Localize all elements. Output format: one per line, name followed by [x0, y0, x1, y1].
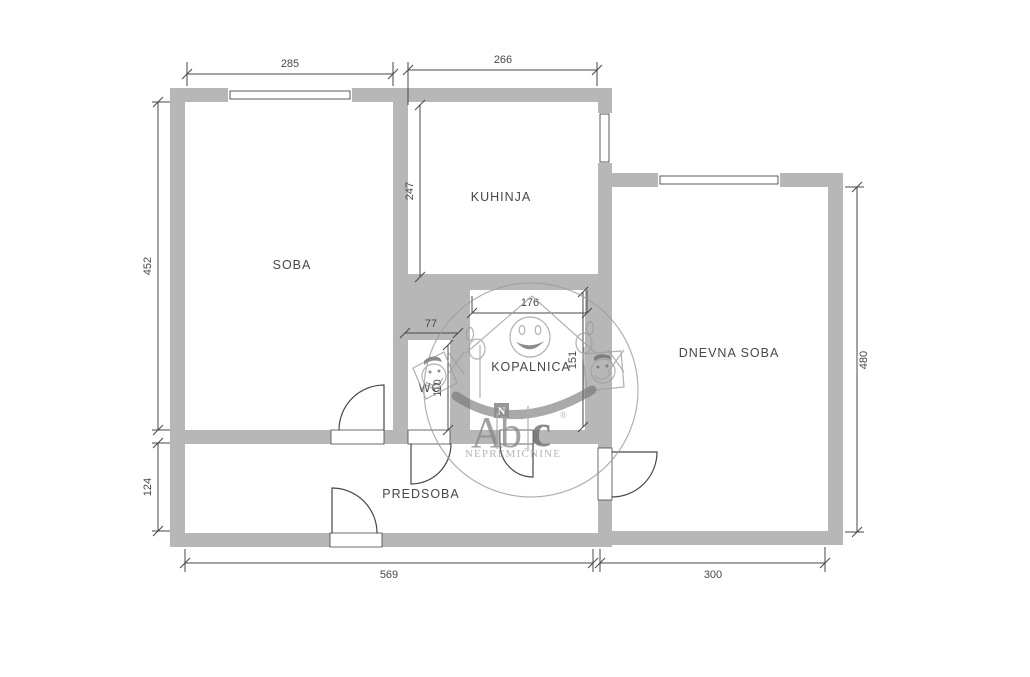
room-label-predsoba: PREDSOBA: [382, 487, 459, 501]
room-label-dnevna-soba: DNEVNA SOBA: [679, 346, 780, 360]
dim-predsoba-height: 124: [142, 478, 154, 496]
kitchen-window: [600, 114, 609, 162]
wall-dnevna-bottom: [612, 531, 843, 545]
dim-bottom-right: 300: [704, 569, 722, 581]
floor-plan-drawing: 285 266 452 124 247 77 176 110 151 480 5…: [0, 0, 1030, 677]
watermark-face-right-eye1: [597, 366, 600, 369]
wall-right: [828, 187, 843, 545]
dnevna-door-sill: [598, 448, 612, 500]
wall-top-mid: [352, 88, 612, 102]
entry-door-sill: [330, 533, 382, 547]
wall-kitchen-bottom: [393, 274, 612, 290]
soba-window: [230, 91, 350, 99]
dim-kuhinja-width: 266: [494, 54, 512, 66]
watermark-face-center-smile: [516, 341, 544, 349]
dim-wc-width: 77: [425, 318, 437, 330]
wall-dnevna-top-right: [780, 173, 843, 187]
watermark-face-center: [510, 317, 550, 357]
room-label-kopalnica: KOPALNICA: [491, 360, 571, 374]
watermark-face-right-eye2: [606, 365, 609, 368]
watermark-face-center-eye-left: [519, 326, 525, 335]
floor-plan-page: 285 266 452 124 247 77 176 110 151 480 5…: [0, 0, 1030, 677]
dim-line-kuhinja-height: [415, 100, 425, 282]
wall-kitchen-right-stub: [598, 102, 612, 113]
wall-corridor-right: [598, 163, 612, 448]
dim-soba-height: 452: [142, 257, 154, 275]
dimension-labels: 285 266 452 124 247 77 176 110 151 480 5…: [142, 54, 870, 581]
watermark-face-left-eye1: [429, 371, 432, 374]
wall-predsoba-bottom-right: [382, 533, 612, 547]
windows: [228, 88, 780, 187]
soba-door-sill: [331, 430, 384, 444]
dnevna-door-leaf-arc: [612, 452, 657, 497]
watermark-face-left-eye2: [438, 370, 441, 373]
wall-dnevna-top-left: [612, 173, 658, 187]
wc-door-sill: [408, 430, 450, 444]
dim-bottom-left: 569: [380, 569, 398, 581]
wall-left: [170, 88, 185, 547]
wall-soba-kitchen-divider: [393, 102, 408, 444]
watermark-face-center-eye-right: [535, 326, 541, 335]
dim-line-soba-height: [152, 97, 170, 435]
room-label-soba: SOBA: [273, 258, 312, 272]
watermark-subtitle: NEPREMIČNINE: [465, 448, 561, 460]
dim-dnevna-height: 480: [858, 351, 870, 369]
dim-soba-width: 285: [281, 58, 299, 70]
dnevna-window: [660, 176, 778, 184]
wall-soba-bottom: [170, 430, 331, 444]
room-label-kuhinja: KUHINJA: [471, 190, 531, 204]
entry-door-leaf-arc: [332, 488, 377, 533]
wc-door-leaf-arc: [411, 444, 451, 484]
wall-top-soba-left: [170, 88, 228, 102]
wall-predsoba-bottom-left: [170, 533, 330, 547]
dim-line-predsoba-height: [152, 438, 170, 536]
watermark-registered-mark: ®: [560, 410, 567, 420]
dim-kuhinja-height: 247: [404, 182, 416, 200]
wall-mid-seg1: [384, 430, 408, 444]
soba-door-leaf-arc: [339, 385, 384, 430]
